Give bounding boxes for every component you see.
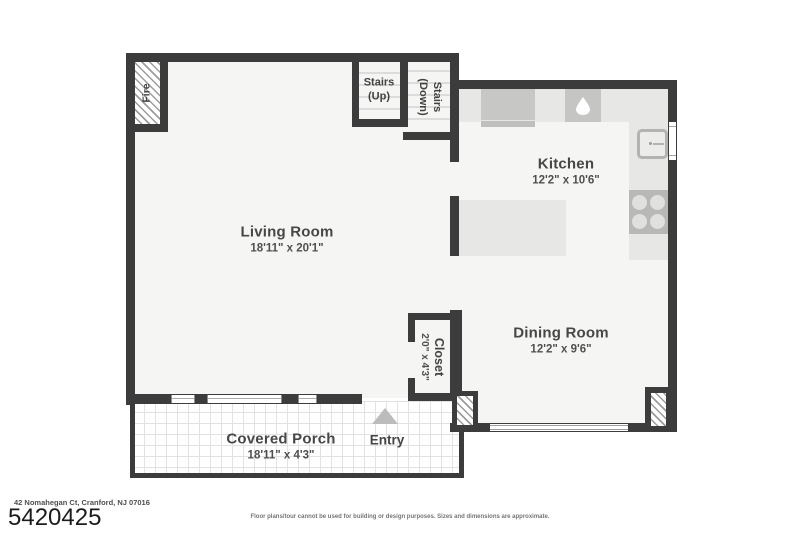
burner-icon [632, 214, 647, 229]
room-name: Dining Room [513, 325, 609, 342]
wall-porch-right [459, 428, 464, 478]
post-hatch-left [457, 396, 473, 425]
stairs-up-label: Stairs (Up) [364, 76, 395, 104]
stove-burners-icon [629, 190, 668, 234]
fireplace-text: Fire [140, 83, 152, 102]
wall-stairs-divider [400, 53, 408, 127]
stair-tread [408, 118, 450, 120]
stairs-down-line1: Stairs [429, 78, 443, 115]
wall-closet-top [408, 313, 462, 320]
wall-fireplace-right [160, 53, 168, 132]
living-room-label: Living Room 18'11" x 20'1" [240, 224, 333, 255]
dining-room-label: Dining Room 12'2" x 9'6" [513, 325, 609, 356]
window [669, 122, 676, 160]
stairs-up-line2: (Up) [364, 90, 395, 104]
wall-fireplace-bottom [126, 124, 168, 132]
wall-stairs-down-bottom [403, 132, 459, 140]
room-name: Covered Porch [226, 431, 335, 448]
wall-kitchen-top [450, 80, 677, 89]
entry-text: Entry [370, 433, 405, 448]
wall-porch-bottom [130, 473, 464, 478]
stair-tread [359, 72, 400, 74]
closet-label: Closet 2'0" x 4'3" [418, 333, 446, 381]
stairs-up-line1: Stairs [364, 76, 395, 90]
covered-porch-label: Covered Porch 18'11" x 4'3" [226, 431, 335, 462]
burner-icon [650, 195, 665, 210]
wall-porch-left [130, 403, 135, 478]
wall-left [126, 53, 135, 405]
wall-stairs-up-bottom [352, 119, 408, 127]
dishwasher [481, 89, 535, 120]
dishwasher-door [481, 121, 535, 127]
room-dims: 18'11" x 20'1" [240, 243, 333, 255]
wall-closet-right [450, 310, 462, 400]
wall-divider-mid [450, 196, 459, 256]
window [207, 395, 282, 403]
room-name: Living Room [240, 224, 333, 241]
fridge-dot [649, 142, 652, 145]
room-dims: 12'2" x 10'6" [532, 175, 600, 187]
stairs-down-label: Stairs (Down) [415, 78, 443, 115]
refrigerator-icon [637, 129, 668, 159]
room-dims: 18'11" x 4'3" [226, 450, 335, 462]
fridge-handle [653, 143, 664, 145]
window [298, 395, 317, 403]
stair-tread [359, 108, 400, 110]
water-drop-icon [576, 97, 590, 115]
room-dims: 2'0" x 4'3" [418, 333, 431, 381]
room-dims: 12'2" x 9'6" [513, 344, 609, 356]
wall-stairs-left [352, 53, 359, 127]
entry-arrow-icon [372, 408, 398, 424]
wall-closet-left-upper [408, 320, 415, 342]
kitchen-counter-right [629, 89, 668, 260]
stairs-down-line2: (Down) [415, 78, 429, 115]
room-name: Closet [430, 333, 446, 381]
disclaimer-text: Floor plans/tour cannot be used for buil… [250, 514, 549, 520]
fireplace-label: Fire [140, 83, 153, 102]
post-hatch-right [651, 393, 666, 426]
burner-icon [632, 195, 647, 210]
window [171, 395, 195, 403]
wall-divider-upper [450, 53, 459, 162]
window [490, 424, 628, 431]
kitchen-peninsula [459, 200, 566, 256]
listing-number: 5420425 [8, 504, 101, 532]
kitchen-label: Kitchen 12'2" x 10'6" [532, 156, 600, 187]
entry-label: Entry [370, 433, 405, 448]
burner-icon [650, 214, 665, 229]
stair-tread [408, 70, 450, 72]
floor-plan: Fire Living Room 18'11" x 20'1" Kitchen … [0, 0, 800, 533]
kitchen-sink [565, 89, 601, 122]
room-name: Kitchen [532, 156, 600, 173]
